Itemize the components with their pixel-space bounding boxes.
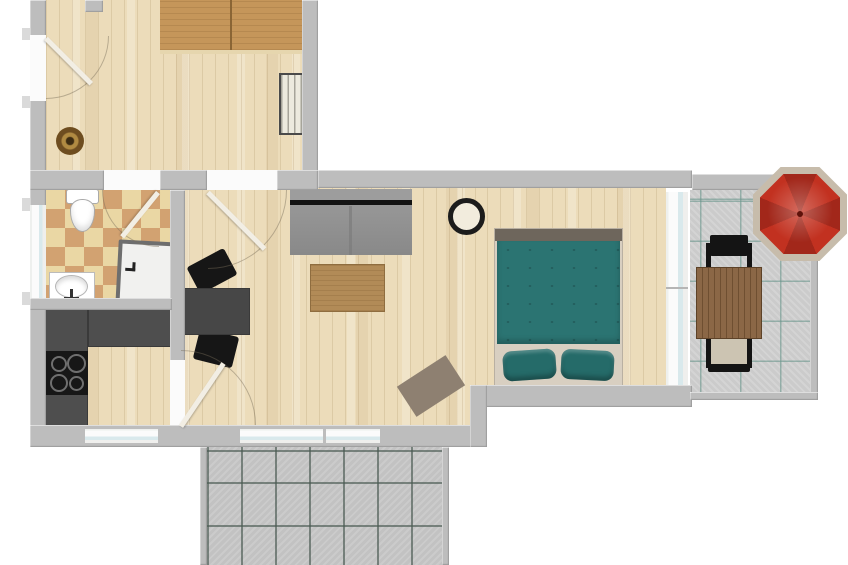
bathroom-bottom-wall (30, 298, 172, 310)
terrace-left-border (200, 447, 207, 565)
parasol-icon (753, 167, 847, 261)
bathroom-window (30, 205, 46, 298)
pillow-icon (560, 349, 614, 382)
room-door-opening (207, 170, 277, 190)
sill (22, 198, 30, 211)
outdoor-chair-back (710, 235, 748, 256)
sofa-icon (290, 189, 412, 255)
burner-icon (51, 356, 67, 372)
double-bed-icon (494, 228, 623, 386)
wooden-bed-icon (160, 0, 302, 54)
living-top-wall (318, 170, 692, 188)
mid-wall-a (30, 170, 104, 190)
outdoor-table-icon (696, 267, 762, 339)
parasol-pole-tip (797, 211, 803, 217)
outdoor-chair-icon (706, 233, 752, 269)
outdoor-chair-rail (706, 243, 711, 269)
outdoor-chair-rail (706, 334, 711, 368)
pillow-icon (502, 348, 557, 382)
terrace-floor (207, 447, 442, 565)
dining-table-icon (177, 288, 250, 335)
mid-wall-c (277, 170, 318, 190)
bathroom-door-opening (104, 170, 160, 190)
outdoor-chair-icon (706, 334, 752, 374)
bedroom-balcony-door-window (666, 192, 688, 385)
kitchen-window (85, 429, 158, 443)
outdoor-chair-back (708, 364, 750, 372)
kitchen-counter-horizontal (88, 307, 172, 347)
parasol-canopy (760, 174, 840, 254)
burner-icon (50, 374, 68, 392)
cooktop-icon (46, 351, 88, 395)
window-divider (666, 287, 688, 289)
top-wall-stub (85, 0, 103, 12)
shower-tap-2 (132, 262, 135, 271)
mid-wall-b (160, 170, 207, 190)
washbasin-icon (49, 272, 95, 301)
coffee-table-icon (310, 264, 385, 312)
round-rug-icon (56, 127, 84, 155)
sill (22, 96, 30, 108)
outdoor-chair-rail (747, 334, 752, 368)
bed-foot-strip (495, 229, 622, 241)
living-window-a (240, 429, 323, 443)
outdoor-chair-rail (747, 243, 752, 269)
sofa-back-line (290, 200, 412, 205)
sill (22, 292, 30, 305)
step-wall (470, 385, 487, 447)
burner-icon (67, 354, 86, 373)
bed-duvet (497, 241, 620, 344)
floor-plan (0, 0, 848, 565)
entry-door-opening (30, 35, 46, 101)
terrace-right-border (442, 447, 449, 565)
bed-center-seam (230, 0, 232, 50)
room-top-left-right-wall (302, 0, 318, 188)
burner-icon (69, 376, 84, 391)
balcony-bottom-border (690, 392, 818, 400)
sill (22, 28, 30, 40)
pendant-lamp-icon (448, 198, 485, 235)
sofa-divider (349, 206, 352, 255)
living-window-b (326, 429, 380, 443)
bedroom-bottom-wall (480, 385, 692, 407)
